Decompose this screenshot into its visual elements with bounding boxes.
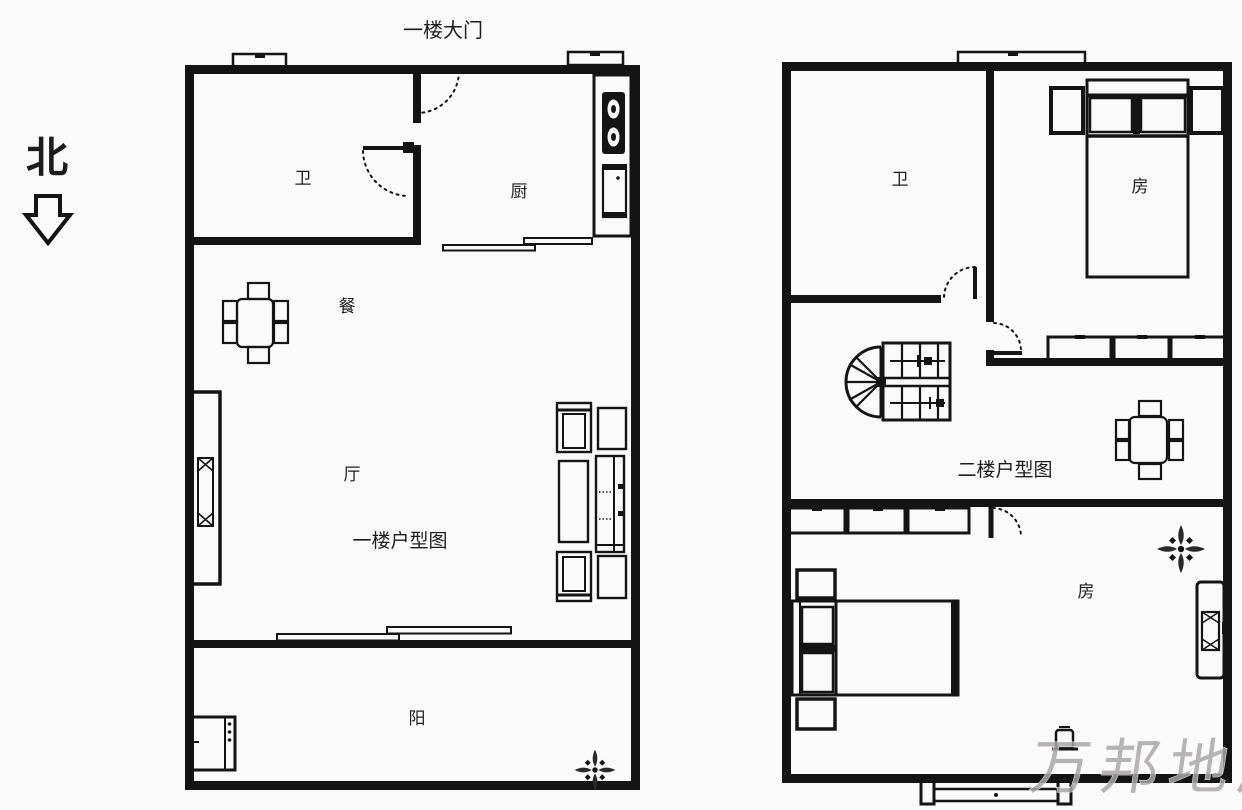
kitchen-unit <box>594 75 631 236</box>
floor1-entrance-label: 一楼大门 <box>403 19 483 42</box>
floor1-walls <box>185 65 640 786</box>
room-label-balcony: 阳 <box>409 709 426 728</box>
dining-table <box>1129 417 1167 463</box>
sofa <box>596 456 624 552</box>
north-arrow-icon <box>26 196 70 243</box>
dining-table-set-2 <box>1116 401 1183 479</box>
tv-cabinet-2 <box>1197 582 1228 678</box>
watermark: 万邦地产 <box>1026 733 1242 803</box>
door-arc-icon <box>994 323 1021 351</box>
pillow <box>802 653 833 692</box>
bedroom-bottom-door <box>991 507 1021 538</box>
door-arc-icon <box>993 508 1021 536</box>
floor1-plan: 一楼大门 <box>185 19 640 790</box>
sofa-set <box>557 403 626 601</box>
sink-icon <box>602 164 627 218</box>
floor2-bathroom-door <box>944 267 975 299</box>
floor2-plan: 卫 房 二楼户型图 房 <box>782 51 1231 804</box>
room-label-living: 厅 <box>344 465 361 484</box>
nightstand <box>797 570 835 598</box>
nightstand <box>1191 88 1223 133</box>
room-label-bedroom-top: 房 <box>1132 177 1149 196</box>
coffee-table <box>559 461 588 542</box>
tv-cabinet-1 <box>185 392 220 584</box>
floor2-title: 二楼户型图 <box>957 459 1052 481</box>
room-label-bedroom-bottom: 房 <box>1078 582 1095 601</box>
pillow <box>1090 98 1132 132</box>
nightstand <box>797 699 835 729</box>
floor1-title: 一楼户型图 <box>352 530 447 552</box>
bed-bottom <box>792 570 959 729</box>
wardrobe-row-top <box>1048 335 1228 361</box>
floor2-access-counter <box>443 238 592 251</box>
door-arc-icon <box>417 71 459 113</box>
washing-machine-icon <box>192 717 235 770</box>
plant-icon <box>1157 525 1205 573</box>
north-indicator: 北 <box>26 134 70 243</box>
side-table <box>598 556 626 598</box>
wardrobe-row-bottom <box>786 507 969 533</box>
pillow <box>1141 98 1185 132</box>
armchair <box>557 403 591 452</box>
door-arc-icon <box>363 151 409 196</box>
balcony-sliding-door <box>277 627 511 641</box>
door-arc-icon <box>944 267 975 298</box>
north-label: 北 <box>26 134 68 181</box>
room-label-kitchen: 厨 <box>511 182 528 201</box>
floor1-entry-door <box>417 71 459 113</box>
watermark-text: 万邦地产 <box>1026 733 1242 803</box>
floor2-walls <box>782 62 1231 779</box>
room-label-bathroom-1f: 卫 <box>295 169 312 188</box>
bedroom-top-door <box>993 323 1022 353</box>
nightstand <box>1051 88 1083 133</box>
spiral-staircase <box>846 343 950 420</box>
floorplan-canvas: 北 一楼大门 <box>0 0 1242 810</box>
side-table <box>598 408 626 449</box>
floorplan-svg: 北 一楼大门 <box>0 0 1242 810</box>
armchair <box>557 552 591 601</box>
room-label-bathroom-2f: 卫 <box>892 170 909 189</box>
room-label-dining: 餐 <box>339 297 356 316</box>
floor1-windows <box>233 51 623 67</box>
dining-table <box>237 299 273 347</box>
floor1-bathroom-door <box>363 142 414 196</box>
dining-table-set-1 <box>223 283 288 363</box>
pillow <box>802 607 833 644</box>
